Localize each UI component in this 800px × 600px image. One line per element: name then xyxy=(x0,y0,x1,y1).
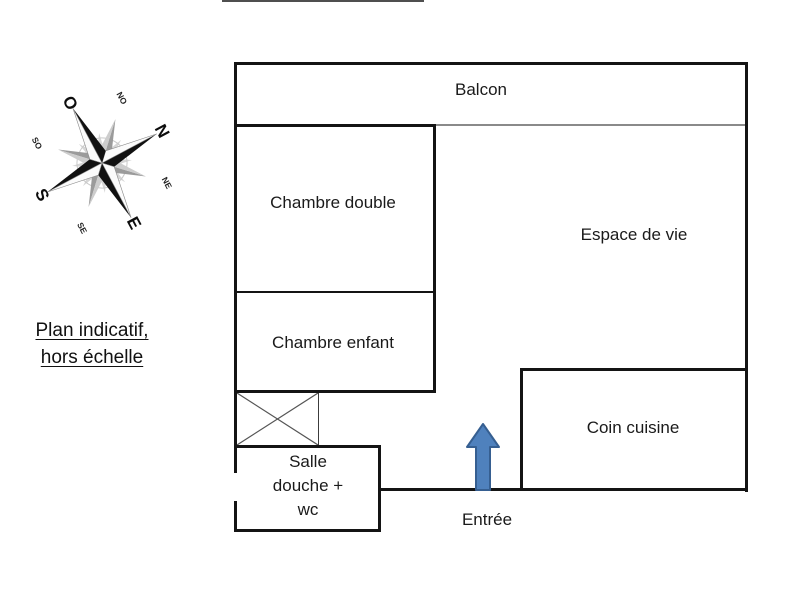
bedroom-divider-wall xyxy=(234,291,433,293)
compass-label-northwest: NO xyxy=(114,90,129,106)
plan-note-line2: hors échelle xyxy=(41,347,143,368)
room-label-chambre-double: Chambre double xyxy=(270,193,396,213)
balcony-divider-line xyxy=(433,124,745,126)
room-label-coin-cuisine: Coin cuisine xyxy=(587,418,680,438)
plan-note-line1: Plan indicatif, xyxy=(35,320,148,341)
bathroom-right-wall xyxy=(378,445,381,532)
compass-rose-icon: N E S O NE SE SO NO xyxy=(2,63,202,263)
bedrooms-right-wall xyxy=(433,124,436,393)
room-label-entree: Entrée xyxy=(462,510,512,530)
compass-label-southwest: SO xyxy=(30,135,45,151)
compass-label-north: N xyxy=(151,121,174,141)
bathroom-top-wall xyxy=(234,445,381,448)
room-label-espace-de-vie: Espace de vie xyxy=(581,225,688,245)
wall-left-lower xyxy=(234,501,237,532)
kitchen-top-wall xyxy=(520,368,748,371)
compass-label-east: E xyxy=(123,214,145,233)
cropped-top-line xyxy=(222,0,424,2)
kitchen-left-wall xyxy=(520,368,523,491)
floor-plan-page: N E S O NE SE SO NO Plan indicatif, hors… xyxy=(0,0,800,600)
compass-label-south: S xyxy=(31,185,53,204)
crossed-box-diagonals xyxy=(237,393,318,445)
salle-douche-line2: douche + xyxy=(273,476,343,495)
bathroom-bottom-wall xyxy=(234,529,381,532)
wall-right xyxy=(745,62,748,492)
room-label-salle-douche: Salle douche + wc xyxy=(273,450,343,522)
plan-note: Plan indicatif, hors échelle xyxy=(35,317,148,371)
compass-label-west: O xyxy=(59,93,82,114)
crossed-box xyxy=(237,393,319,445)
entrance-arrow-icon xyxy=(460,420,508,493)
room-label-chambre-enfant: Chambre enfant xyxy=(272,333,394,353)
salle-douche-line3: wc xyxy=(298,500,319,519)
wall-top xyxy=(234,62,748,65)
compass-label-southeast: SE xyxy=(75,221,89,236)
bedroom-top-wall xyxy=(234,124,436,127)
entrance-arrow-shape xyxy=(467,424,499,490)
salle-douche-line1: Salle xyxy=(289,452,327,471)
compass-label-northeast: NE xyxy=(160,175,175,190)
compass-main-points xyxy=(18,79,186,247)
wall-bottom xyxy=(379,488,748,491)
room-label-balcon: Balcon xyxy=(455,80,507,100)
